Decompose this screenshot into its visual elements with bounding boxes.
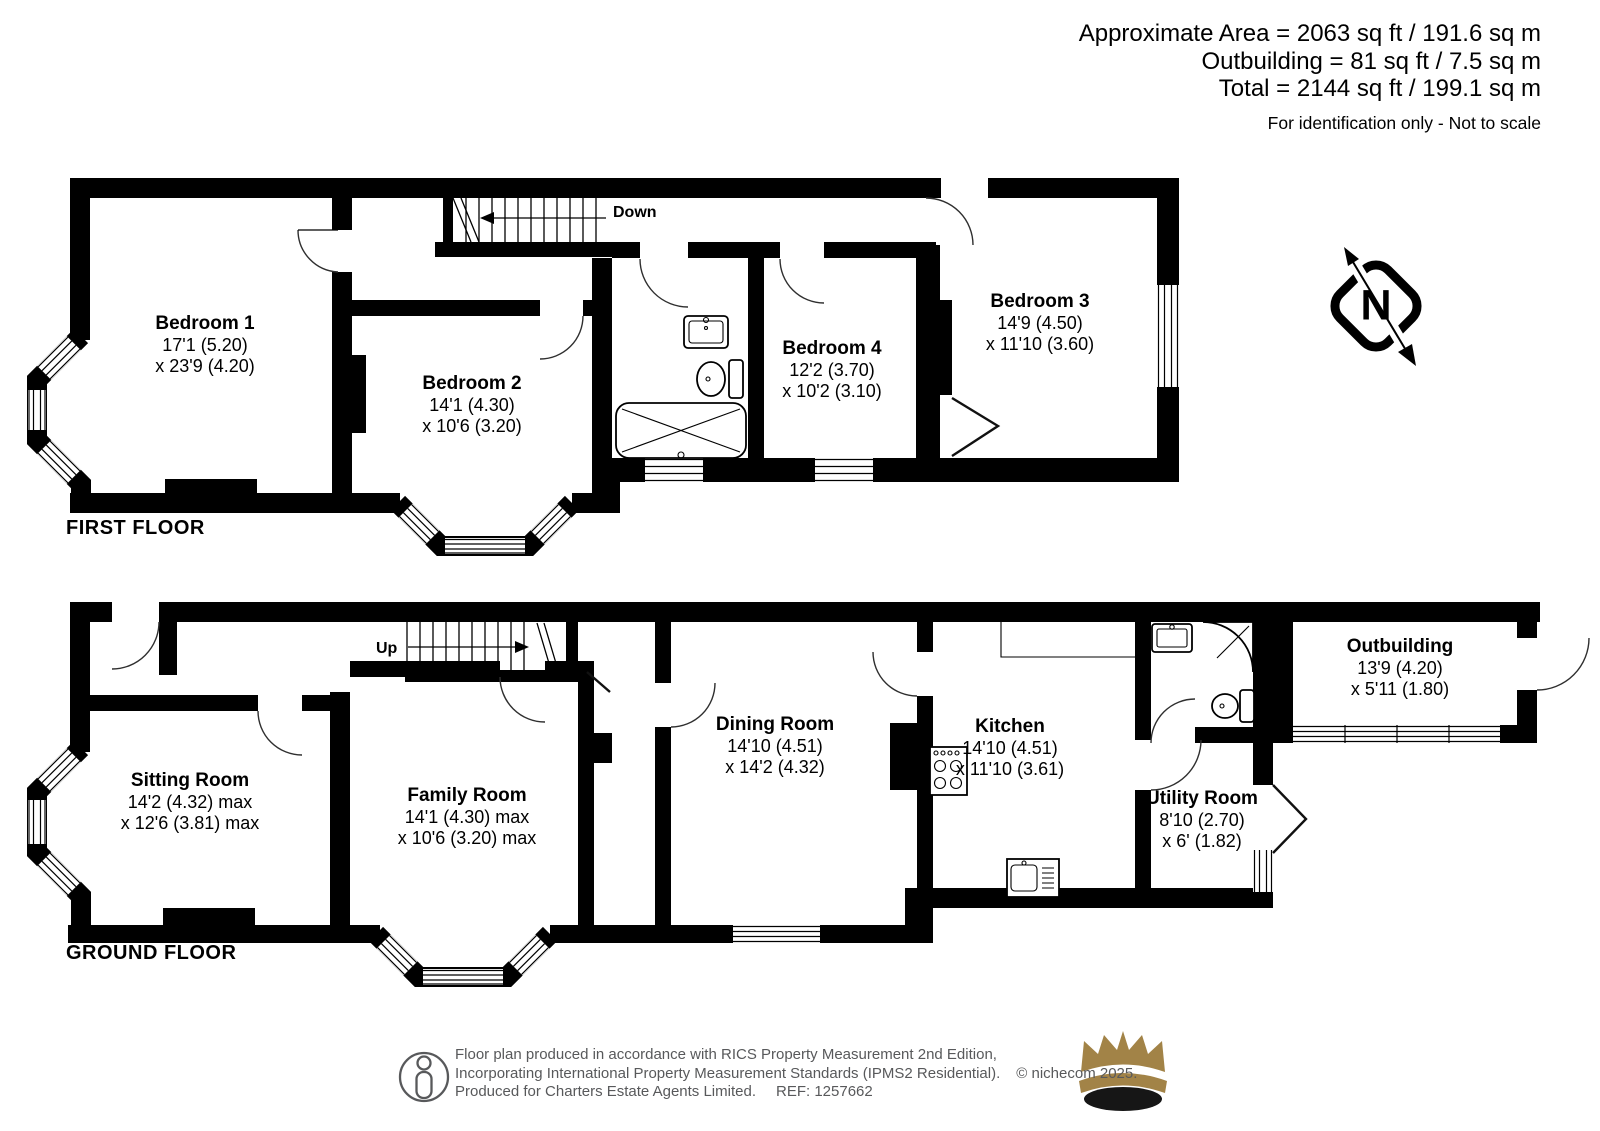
footer-attribution: Floor plan produced in accordance with R… [455,1046,1137,1102]
room-label-bedroom-2: Bedroom 2 14'1 (4.30) x 10'6 (3.20) [422,373,522,438]
room-label-bedroom-4: Bedroom 4 12'2 (3.70) x 10'2 (3.10) [782,338,882,403]
footer-line-2: Incorporating International Property Mea… [455,1065,1000,1082]
copyright-text: © nichecom 2025. [1016,1065,1137,1082]
sink-icon [1152,624,1192,652]
approximate-area: Approximate Area = 2063 sq ft / 191.6 sq… [1079,20,1541,48]
stairs-down-label: Down [613,204,657,222]
floor-plan-drawing [0,0,1600,1131]
compass-north-label: N [1360,282,1391,331]
room-label-bedroom-1: Bedroom 1 17'1 (5.20) x 23'9 (4.20) [155,313,255,378]
floorplan-page: Approximate Area = 2063 sq ft / 191.6 sq… [0,0,1600,1131]
bay-window-sitting-room [28,748,81,932]
ground-floor-label: GROUND FLOOR [66,942,236,965]
scale-disclaimer: For identification only - Not to scale [1079,110,1541,138]
room-label-kitchen: Kitchen 14'10 (4.51) x 11'10 (3.61) [956,716,1064,781]
room-label-dining-room: Dining Room 14'10 (4.51) x 14'2 (4.32) [716,714,834,779]
room-label-sitting-room: Sitting Room 14'2 (4.32) max x 12'6 (3.8… [121,770,260,835]
footer-line-3: Produced for Charters Estate Agents Limi… [455,1083,756,1100]
stairs-down [453,198,606,242]
stairs-up-label: Up [376,640,397,658]
shower-room-fixtures [1152,622,1254,722]
toilet-icon [729,360,743,398]
toilet-icon [1240,690,1254,722]
first-floor-label: FIRST FLOOR [66,517,205,540]
area-summary: Approximate Area = 2063 sq ft / 191.6 sq… [1079,20,1541,137]
bathroom-fixtures [616,316,746,458]
footer-line-1: Floor plan produced in accordance with R… [455,1046,1137,1065]
reference-number: REF: 1257662 [776,1083,873,1100]
room-label-bedroom-3: Bedroom 3 14'9 (4.50) x 11'10 (3.60) [986,291,1094,356]
bay-window-bedroom-2 [398,503,572,554]
bay-window-family-room [376,934,550,985]
room-label-family-room: Family Room 14'1 (4.30) max x 10'6 (3.20… [398,785,537,850]
outbuilding-area: Outbuilding = 81 sq ft / 7.5 sq m [1079,48,1541,76]
rics-person-icon [400,1053,448,1101]
room-label-utility-room: Utility Room 8'10 (2.70) x 6' (1.82) [1146,788,1258,853]
kitchen-counter [1001,622,1135,657]
bay-window-bedroom-1 [28,336,81,500]
total-area: Total = 2144 sq ft / 199.1 sq m [1079,75,1541,103]
window [733,725,1500,943]
room-label-outbuilding: Outbuilding 13'9 (4.20) x 5'11 (1.80) [1347,636,1454,701]
